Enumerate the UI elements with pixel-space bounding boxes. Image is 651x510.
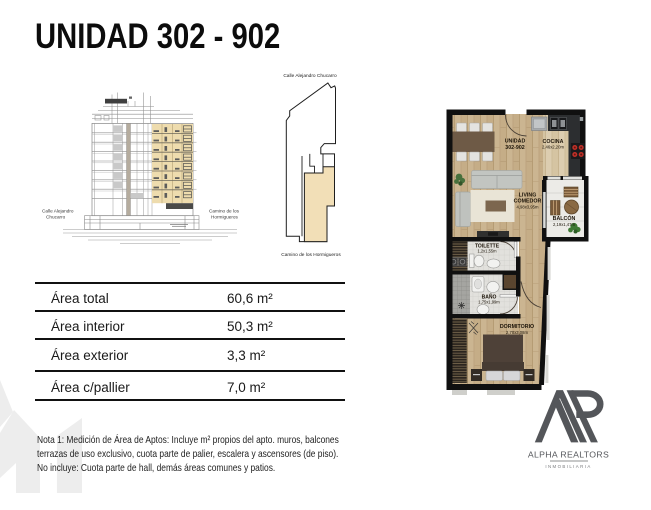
- svg-text:Calle Alejandro Chucarro: Calle Alejandro Chucarro: [283, 73, 337, 79]
- svg-text:Hormigueros: Hormigueros: [211, 215, 238, 220]
- svg-text:1,75x1,99m: 1,75x1,99m: [478, 300, 500, 305]
- svg-text:2,70x3,08m: 2,70x3,08m: [506, 330, 528, 335]
- svg-text:4,98x3,95m: 4,98x3,95m: [517, 204, 539, 209]
- svg-text:INMOBILIARIA: INMOBILIARIA: [545, 464, 591, 469]
- svg-text:LIVING: LIVING: [519, 193, 537, 199]
- svg-text:BALCÓN: BALCÓN: [553, 214, 576, 222]
- svg-text:2,19x1,47m: 2,19x1,47m: [553, 222, 575, 227]
- svg-text:UNIDAD: UNIDAD: [505, 139, 526, 145]
- svg-text:302-902: 302-902: [505, 145, 524, 151]
- svg-text:1,2x1,55m: 1,2x1,55m: [477, 249, 497, 254]
- svg-text:2,46x2,20m: 2,46x2,20m: [542, 145, 564, 150]
- svg-text:ALPHA REALTORS: ALPHA REALTORS: [528, 450, 609, 460]
- svg-text:Chucarro: Chucarro: [46, 215, 66, 220]
- svg-text:Camino de los: Camino de los: [209, 209, 240, 214]
- svg-text:Calle Alejandro: Calle Alejandro: [42, 209, 74, 214]
- svg-text:Camino de los Hormigueros: Camino de los Hormigueros: [281, 252, 341, 258]
